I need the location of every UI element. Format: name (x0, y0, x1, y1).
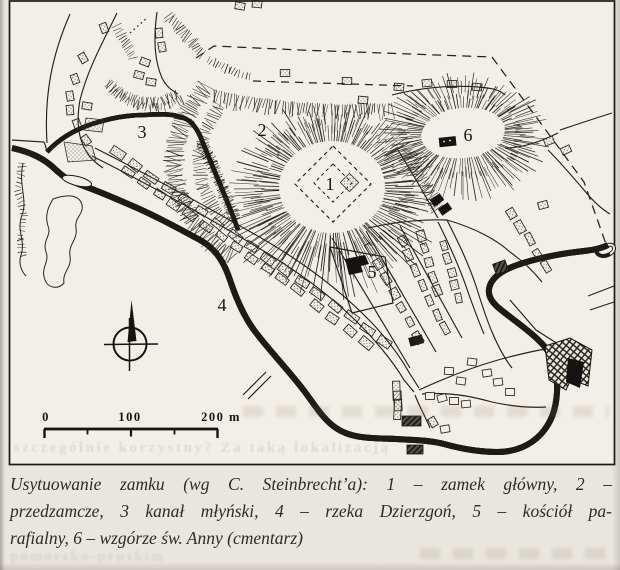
scale-tick-0: 0 (42, 410, 50, 424)
label-river: 4 (218, 295, 227, 315)
label-st-anna-hill: 6 (464, 125, 473, 145)
figure-caption-line1: Usytuowanie zamku (wg C. Steinbrecht’a):… (10, 474, 612, 501)
scale-tick-200: 200 m (201, 410, 241, 424)
scan-edge-bottom (0, 562, 620, 570)
scan-edge-left (0, 0, 5, 570)
label-main-castle: 1 (326, 174, 335, 194)
label-mill-canal: 3 (138, 122, 147, 142)
label-outer-bailey: 2 (258, 120, 267, 140)
bleed-through-text: szczególnie korzystny? Za taką lokalizac… (14, 440, 391, 456)
map-frame (10, 1, 615, 465)
bleed-through-smudge (243, 406, 609, 417)
castle-location-map: szczególnie korzystny? Za taką lokalizac… (0, 0, 620, 467)
figure-caption-line2: przedzamcze, 3 kanał młyński, 4 – rzeka … (10, 501, 612, 528)
scan-edge-right (612, 0, 620, 570)
scale-tick-100: 100 (118, 410, 141, 424)
label-parish-church: 5 (368, 262, 377, 282)
st-anna-chapel-top (439, 136, 457, 147)
mill-complex (545, 338, 592, 390)
site-map-figure: szczególnie korzystny? Za taką lokalizac… (0, 0, 620, 467)
